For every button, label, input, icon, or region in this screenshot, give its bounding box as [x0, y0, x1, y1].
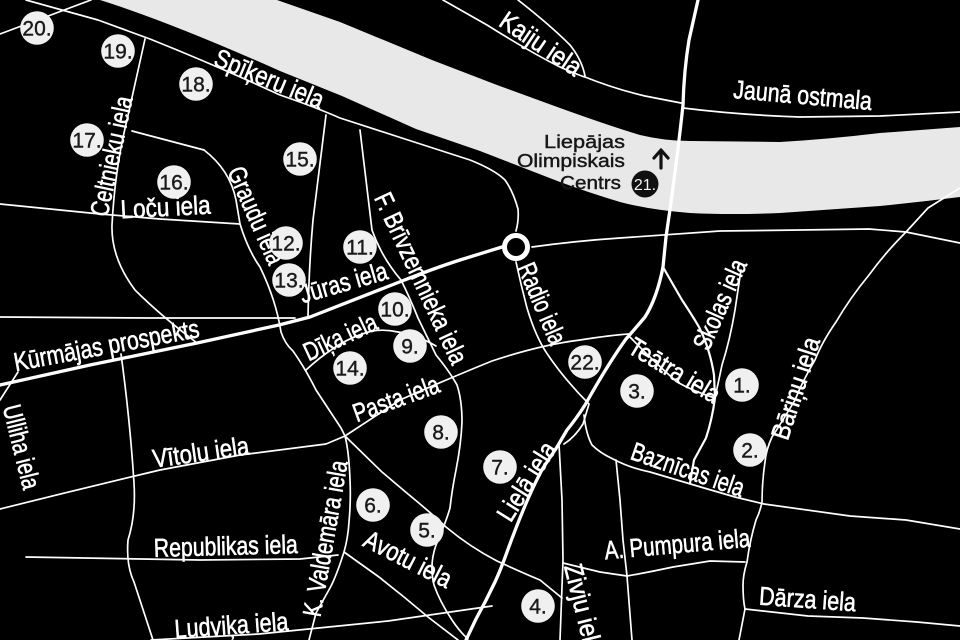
svg-text:3.: 3. [628, 381, 646, 404]
svg-text:12.: 12. [271, 233, 300, 256]
svg-text:18.: 18. [181, 74, 210, 97]
svg-text:19.: 19. [103, 41, 132, 64]
svg-text:2.: 2. [741, 440, 759, 463]
svg-text:Olimpiskais: Olimpiskais [517, 151, 625, 171]
svg-text:21.: 21. [634, 177, 656, 194]
svg-text:4.: 4. [529, 596, 547, 619]
svg-text:20.: 20. [22, 18, 51, 41]
svg-text:9.: 9. [401, 336, 419, 359]
svg-text:22.: 22. [570, 352, 599, 375]
svg-text:Centrs: Centrs [560, 173, 621, 193]
svg-text:Liepājas: Liepājas [544, 132, 625, 152]
svg-text:7.: 7. [491, 457, 509, 480]
svg-text:8.: 8. [432, 422, 450, 445]
svg-text:1.: 1. [733, 375, 751, 398]
svg-text:5.: 5. [418, 520, 436, 543]
svg-text:Republikas iela: Republikas iela [153, 529, 298, 563]
svg-text:16.: 16. [159, 172, 188, 195]
svg-text:13.: 13. [274, 270, 303, 293]
svg-text:6.: 6. [364, 495, 382, 518]
svg-text:11.: 11. [346, 237, 374, 260]
svg-text:14.: 14. [335, 358, 364, 381]
svg-text:10.: 10. [380, 299, 409, 322]
svg-text:17.: 17. [72, 130, 101, 153]
svg-text:15.: 15. [285, 149, 314, 172]
